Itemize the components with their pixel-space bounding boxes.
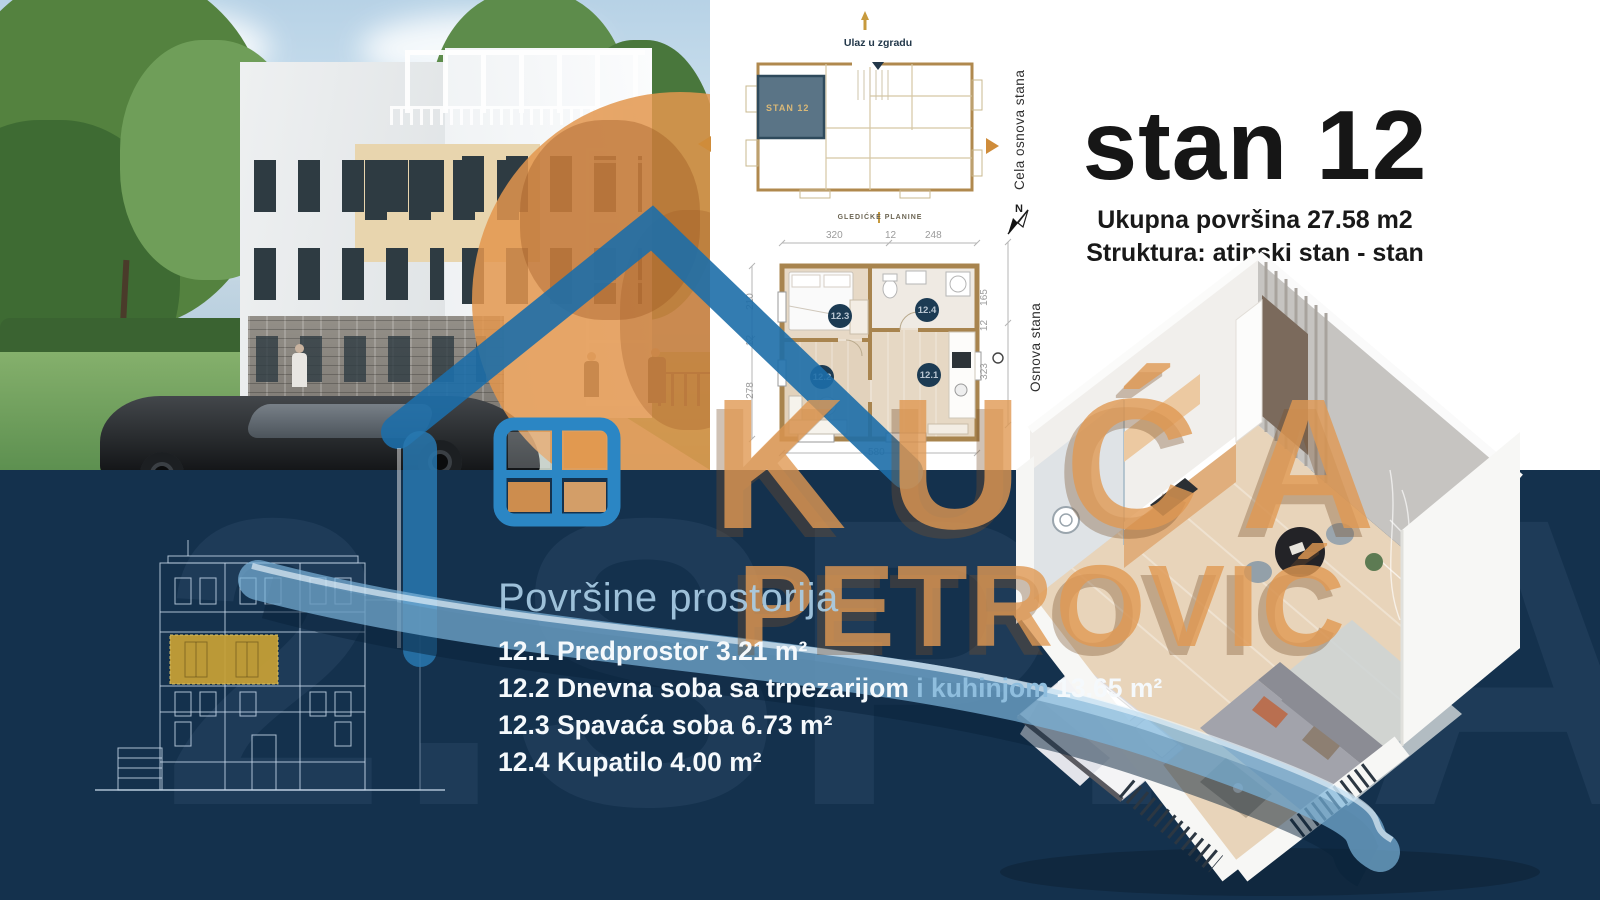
room-areas-heading: Površine prostorija [498, 576, 1258, 621]
dim-top-1: 320 [826, 230, 843, 241]
room-line-2: 12.2 Dnevna soba sa trpezarijom i kuhinj… [498, 670, 1258, 707]
room-4-text: 12.4 Kupatilo 4.00 m² [498, 747, 762, 777]
entrance-label: Ulaz u zgradu [843, 38, 913, 50]
street-direction-arrow-left-icon [698, 136, 711, 152]
page-title: stan 12 [1035, 96, 1475, 194]
window-row [254, 248, 444, 300]
room-marker-bedroom: 12.3 [828, 304, 852, 328]
room-2-text: 12.2 Dnevna soba sa trpezarijom [498, 673, 916, 703]
window-row [256, 336, 486, 382]
dim-top-2: 12 [885, 230, 896, 241]
full-floor-plan-drawing [740, 35, 1010, 205]
project-logo-text: GLEDIĆKE PLANINE [830, 214, 930, 221]
entrance-chevron-icon [872, 62, 884, 70]
dim-left-2: 12 [745, 335, 756, 346]
room-line-3: 12.3 Spavaća soba 6.73 m² [498, 707, 1258, 744]
room-2-area: 13.65 m² [1049, 673, 1162, 703]
room-2-accent: i kuhinjom [916, 673, 1049, 703]
room-1-text: 12.1 Predprostor 3.21 m² [498, 636, 807, 666]
dim-top-3: 248 [925, 230, 942, 241]
dim-right-2: 12 [979, 320, 990, 331]
unit-highlight-label: STAN 12 [766, 103, 809, 113]
street-direction-arrow-right-icon [986, 138, 999, 154]
building-exterior-photo [0, 0, 710, 470]
room-line-1: 12.1 Predprostor 3.21 m² [498, 633, 1258, 670]
dim-left-1: 210 [745, 293, 756, 310]
room-areas-panel: Površine prostorija 12.1 Predprostor 3.2… [498, 576, 1258, 781]
project-emblem-icon [858, 11, 872, 31]
room-3-text: 12.3 Spavaća soba 6.73 m² [498, 710, 832, 740]
real-estate-flyer: STAN 12 Ulaz u zgradu Cela osnova stana … [0, 0, 1600, 900]
building-elevation-drawing [80, 530, 460, 810]
room-line-4: 12.4 Kupatilo 4.00 m² [498, 744, 1258, 781]
room-marker-bath: 12.4 [915, 298, 939, 322]
full-plan-caption: Cela osnova stana [1012, 66, 1027, 190]
dim-right-1: 165 [979, 289, 990, 306]
brand-word-kuca: KUĆA [712, 372, 1417, 558]
